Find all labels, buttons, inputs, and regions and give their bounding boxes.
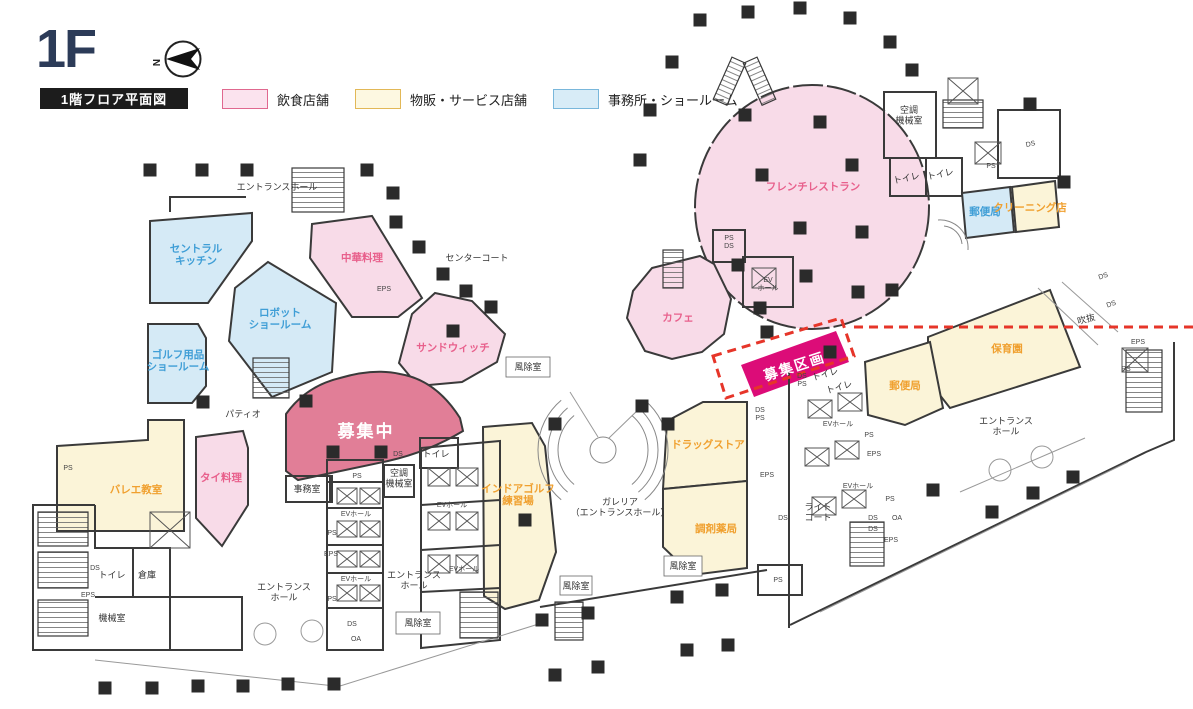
column: [644, 104, 657, 117]
column: [761, 326, 774, 339]
utility-label: PS: [864, 432, 874, 439]
staircase-icon: [850, 522, 884, 566]
label-sandwich: サンドウィッチ: [416, 342, 490, 354]
column: [1027, 487, 1040, 500]
column: [390, 216, 403, 229]
label-entrance-hall-nw: エントランスホール: [237, 182, 318, 192]
column: [884, 36, 897, 49]
column: [1058, 176, 1071, 189]
column: [844, 12, 857, 25]
elevator-icon: [842, 490, 866, 508]
staircase-icon: [555, 602, 583, 640]
column: [754, 302, 767, 315]
label-ac-machine-room-ne: 空調機械室: [895, 104, 922, 125]
column: [192, 680, 205, 693]
label-golf-showroom: ゴルフ用品ショールーム: [147, 348, 210, 373]
utility-label: DSPS: [755, 407, 765, 422]
elevator-icon: [456, 468, 478, 486]
staircase-icon: [38, 512, 88, 546]
label-windbreak-s2: 風除室: [669, 560, 696, 571]
utility-label: DSPS: [797, 373, 807, 388]
utility-label: EPS: [81, 592, 95, 599]
utility-label: EPS: [324, 551, 338, 558]
room-thai: [196, 431, 248, 546]
column: [732, 259, 745, 272]
galleria-stair-feature: [538, 400, 668, 500]
label-pharmacy: 調剤薬局: [695, 522, 737, 535]
staircase-icon: [1126, 350, 1162, 412]
staircase-icon: [38, 600, 88, 636]
elevator-icon: [808, 400, 832, 418]
label-galleria: ガレリア（エントランスホール）: [571, 497, 670, 517]
utility-label: OA: [892, 515, 902, 522]
utility-label: DS: [1025, 140, 1036, 149]
column: [716, 584, 729, 597]
utility-label: DS: [868, 515, 878, 522]
utility-label: EVホール: [341, 510, 371, 518]
utility-label: DS: [778, 515, 788, 522]
utility-label: EPS: [1131, 339, 1145, 346]
column: [582, 607, 595, 620]
elevator-icon: [838, 393, 862, 411]
elevator-icon: [805, 448, 829, 466]
label-chinese-restaurant: 中華料理: [341, 251, 383, 264]
utility-label: PS: [986, 163, 996, 170]
utility-label: PS: [63, 465, 73, 472]
label-entrance-hall-east: エントランスホール: [979, 416, 1033, 436]
elevator-icon: [456, 512, 478, 530]
column: [662, 418, 675, 431]
column: [241, 164, 254, 177]
label-patio: パティオ: [225, 409, 260, 419]
column: [146, 682, 159, 695]
label-post-office-east: 郵便局: [889, 379, 921, 392]
utility-label: PSDS: [724, 235, 734, 250]
column: [197, 396, 210, 409]
label-thai: タイ料理: [200, 471, 242, 484]
utility-label: DS: [90, 565, 100, 572]
label-light-court: ライトコート: [804, 502, 831, 522]
column: [447, 325, 460, 338]
elevator-icon: [428, 512, 450, 530]
utility-label: DS: [868, 526, 878, 533]
label-cleaning: クリーニング店: [993, 201, 1067, 214]
label-windbreak-s1: 風除室: [562, 580, 589, 591]
column: [1067, 471, 1080, 484]
staircase-icon: [460, 592, 498, 638]
utility-label: PS: [1121, 366, 1131, 373]
staircase-icon: [253, 358, 289, 398]
column: [906, 64, 919, 77]
column: [144, 164, 157, 177]
utility-label: DS: [1106, 300, 1118, 310]
label-toilet-center: トイレ: [422, 449, 449, 459]
utility-label: EVホール: [449, 565, 479, 573]
utility-label: PS: [327, 596, 337, 603]
utility-label: EVホール: [823, 420, 853, 428]
utility-label: PS: [885, 496, 895, 503]
floor-plan-drawing: セントラルキッチンロボットショールームゴルフ用品ショールーム郵便局中華料理サンド…: [0, 0, 1193, 709]
column: [742, 6, 755, 19]
column: [814, 116, 827, 129]
elevator-icon: [428, 468, 450, 486]
column: [549, 669, 562, 682]
column: [722, 639, 735, 652]
column: [739, 109, 752, 122]
column: [671, 591, 684, 604]
elevator-icon: [337, 521, 357, 537]
label-storage: 倉庫: [138, 569, 156, 580]
utility-label: EPS: [760, 472, 774, 479]
label-nursery: 保育園: [990, 342, 1023, 355]
column: [1024, 98, 1037, 111]
column: [519, 514, 532, 527]
label-cafe: カフェ: [662, 312, 694, 324]
utility-label: EVホール: [341, 575, 371, 583]
column: [846, 159, 859, 172]
elevator-icon: [337, 585, 357, 601]
column: [327, 446, 340, 459]
elevator-icon: [360, 585, 380, 601]
column: [196, 164, 209, 177]
column: [794, 222, 807, 235]
column: [852, 286, 865, 299]
label-french-restaurant: フレンチレストラン: [766, 181, 861, 193]
column: [927, 484, 940, 497]
utility-label: EVホール: [843, 482, 873, 490]
elevator-icon: [835, 441, 859, 459]
elevator-icon: [360, 521, 380, 537]
column: [536, 614, 549, 627]
column: [460, 285, 473, 298]
label-entrance-hall-center: エントランスホール: [387, 570, 441, 590]
label-drugstore: ドラッグストア: [671, 438, 745, 451]
utility-label: PS: [327, 530, 337, 537]
label-toilet-sw: トイレ: [98, 570, 125, 580]
utility-label: EPS: [867, 451, 881, 458]
elevator-icon: [360, 488, 380, 504]
column: [756, 169, 769, 182]
column: [666, 56, 679, 69]
label-windbreak-sw: 風除室: [404, 617, 431, 628]
column: [328, 678, 341, 691]
utility-label: EVホール: [437, 501, 467, 509]
column: [794, 2, 807, 15]
column: [694, 14, 707, 27]
label-central-kitchen: セントラルキッチン: [170, 243, 223, 267]
utility-label: DS: [1098, 272, 1110, 282]
column: [681, 644, 694, 657]
utility-label: DS: [393, 451, 403, 458]
label-void: 吹抜: [1076, 311, 1096, 326]
elevator-icon: [337, 551, 357, 567]
column: [361, 164, 374, 177]
label-windbreak-center: 風除室: [514, 361, 541, 372]
utility-label: DS: [347, 621, 357, 628]
elevator-icon: [337, 488, 357, 504]
label-office-room: 事務室: [293, 483, 320, 494]
column: [549, 418, 562, 431]
column: [485, 301, 498, 314]
column: [99, 682, 112, 695]
staircase-icon: [38, 552, 88, 588]
label-toilet-ne-2: トイレ: [926, 166, 955, 181]
column: [282, 678, 295, 691]
column: [237, 680, 250, 693]
label-ballet: バレエ教室: [110, 483, 163, 496]
floor-plan-page: 1F N 1階フロア平面図 飲食店舗 物販・サービス店舗 事務所・ショールーム: [0, 0, 1193, 709]
utility-label: EPS: [884, 537, 898, 544]
elevator-icon: [360, 551, 380, 567]
utility-label: EPS: [377, 286, 391, 293]
label-ac-machine-room-center: 空調機械室: [385, 467, 412, 488]
column: [800, 270, 813, 283]
column: [592, 661, 605, 674]
label-center-court: センターコート: [445, 253, 508, 263]
utility-label: OA: [351, 636, 361, 643]
column: [300, 395, 313, 408]
column: [413, 241, 426, 254]
column: [636, 400, 649, 413]
column: [856, 226, 869, 239]
staircase-icon: [663, 250, 683, 288]
column: [387, 187, 400, 200]
column: [634, 154, 647, 167]
utility-label: PS: [773, 577, 783, 584]
column: [886, 284, 899, 297]
utility-label: PS: [352, 473, 362, 480]
label-entrance-hall-sw: エントランスホール: [257, 582, 311, 602]
column: [824, 346, 837, 359]
column: [986, 506, 999, 519]
column: [437, 268, 450, 281]
label-machine-room: 機械室: [98, 612, 125, 623]
label-recruiting: 募集中: [337, 421, 395, 441]
column: [375, 446, 388, 459]
